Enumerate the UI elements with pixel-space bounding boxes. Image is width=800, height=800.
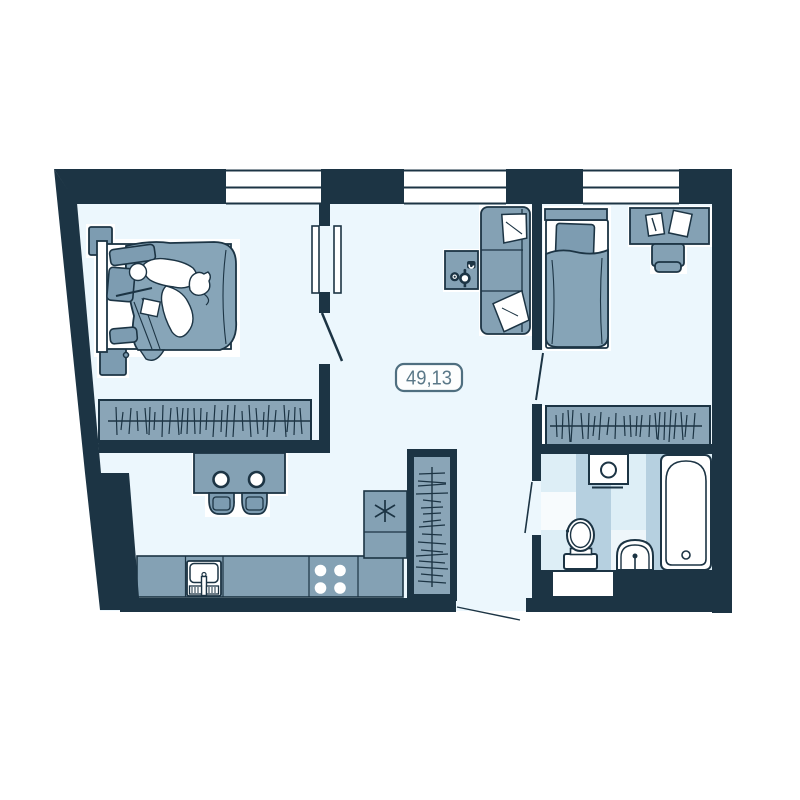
svg-text:49,13: 49,13 — [406, 367, 452, 390]
